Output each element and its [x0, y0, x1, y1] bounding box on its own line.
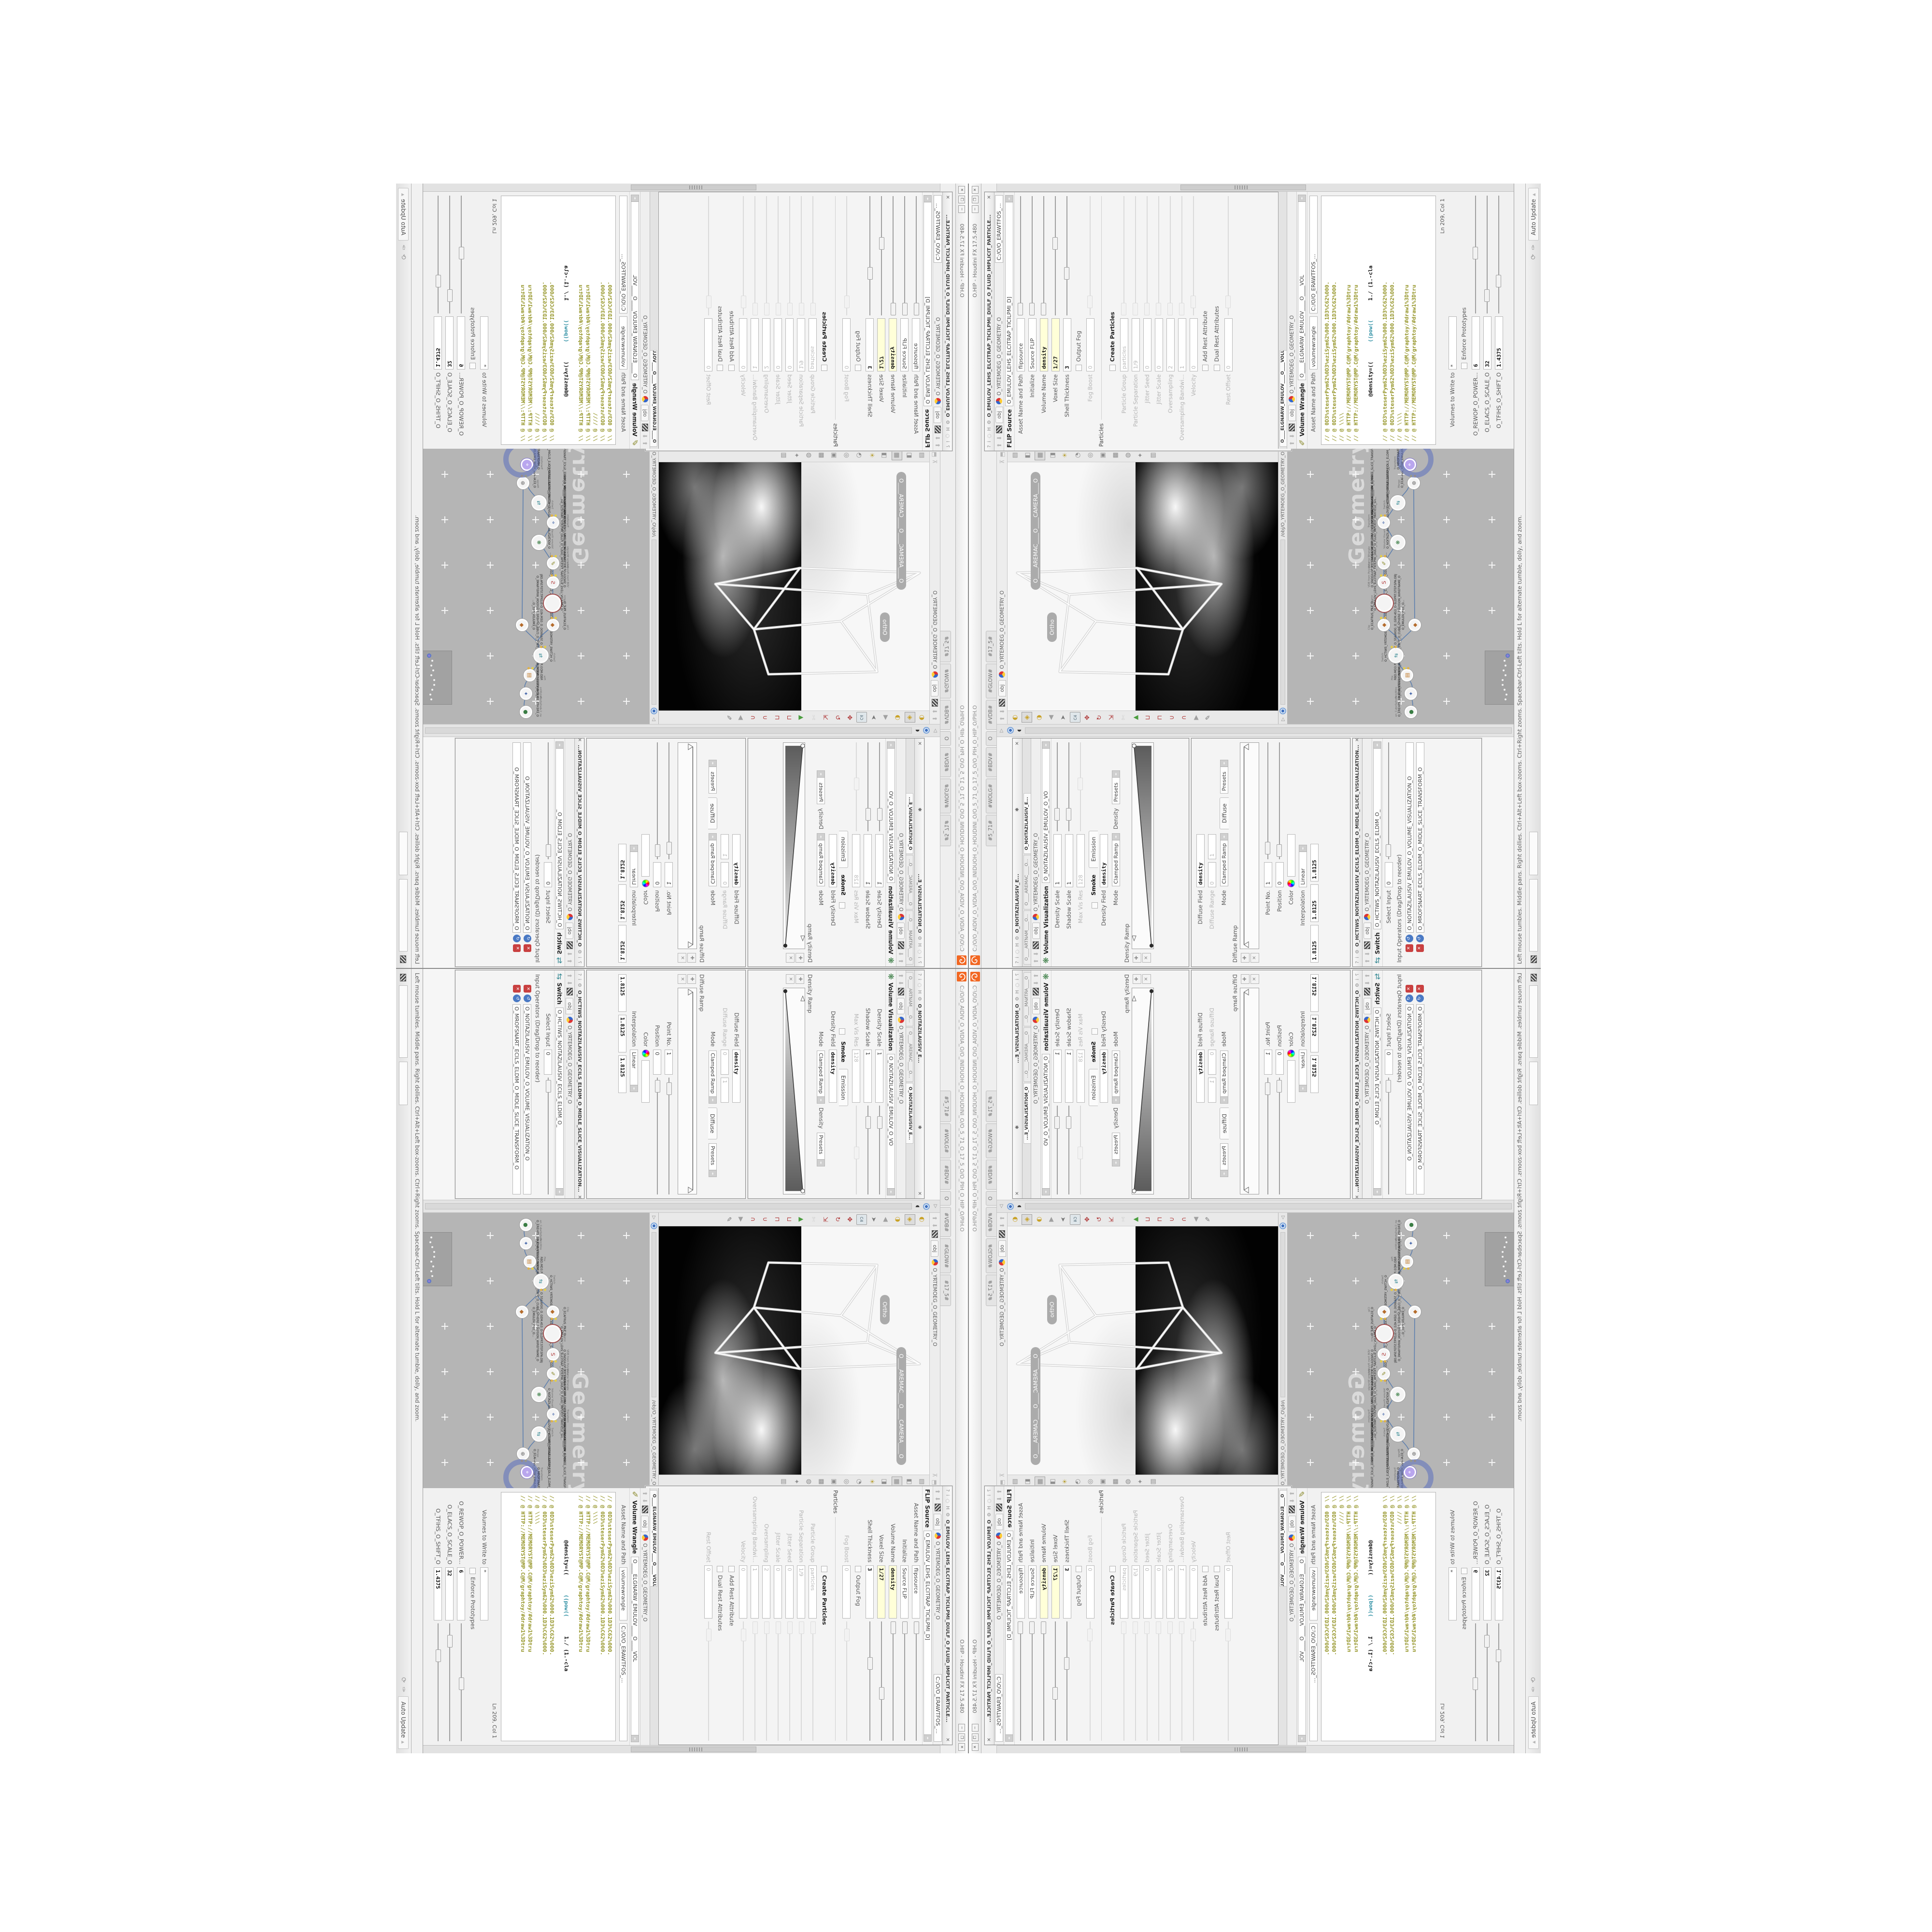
diffuse-range-lo[interactable]: 0	[721, 862, 729, 887]
section-header[interactable]: Particles	[830, 1486, 841, 1745]
shelf-tab[interactable]: #GLOW#	[986, 1238, 996, 1273]
info-icon[interactable]: i	[1015, 957, 1020, 958]
info-icon[interactable]: i	[945, 1494, 950, 1496]
param-slider[interactable]	[1495, 1623, 1502, 1741]
param-slider[interactable]	[1064, 1621, 1070, 1741]
reorder-input-button[interactable]: ↺	[513, 935, 521, 942]
reorder-input-button[interactable]: ↺	[513, 994, 521, 1002]
param-slider[interactable]	[1179, 1621, 1185, 1741]
input-operator-field[interactable]: O_MROFSNART_ECILS_ELDIM_O_MIDLE_SLICE_TR…	[1416, 1004, 1424, 1194]
network-node[interactable]: ❋ Volume VisualizationO_NOITAZILAUSIV_EM…	[1390, 1387, 1406, 1402]
diffuse-ramp-editor[interactable]	[678, 742, 697, 949]
diffuse-range-lo[interactable]: 0	[721, 1050, 729, 1075]
shade-mode-icon[interactable]: ◔	[854, 450, 865, 461]
param-slider[interactable]	[1065, 1106, 1072, 1194]
shelf-tab[interactable]: #17_5#	[940, 1275, 951, 1306]
scale-gadget-icon[interactable]: ⇲	[820, 1214, 831, 1225]
nav-up-icon[interactable]: ⬆	[1033, 973, 1039, 978]
shelf-tab[interactable]: #BDV#	[986, 747, 996, 777]
network-node[interactable]: ⇆ SwitchO_HCTIWS_NOITAZILAUSIV_ECILS_ELD…	[1390, 1426, 1406, 1442]
input-operator-field[interactable]: O_NOITAZILAUSIV_EMULOV_O_VOLUME_VISUALIZ…	[524, 1004, 532, 1194]
shade-diamond-icon[interactable]: ◈	[1022, 1214, 1032, 1225]
nav-up-icon[interactable]: ⬆	[898, 973, 905, 978]
pane-vertical-scrollbar[interactable]	[997, 1745, 1514, 1753]
param-slider[interactable]	[1017, 1621, 1024, 1741]
ramp-add-button[interactable]: ✚	[796, 953, 804, 963]
cut-icon[interactable]: ✄	[808, 712, 819, 723]
param-slider[interactable]	[1077, 1106, 1084, 1194]
close-icon[interactable]: ✕	[1355, 739, 1360, 742]
param-slider[interactable]	[1087, 196, 1094, 315]
nav-up-icon[interactable]: ⬆	[999, 716, 1006, 721]
update-mode-dropdown[interactable]: Auto Update ▴	[398, 1696, 409, 1749]
network-node[interactable]: ⊕ MergeO_ECAFRUS_HTIW_EMULOV_EGREM_O_MER…	[517, 1448, 529, 1460]
param-checkbox[interactable]	[729, 1566, 735, 1572]
network-scrollbar[interactable]	[652, 1232, 656, 1397]
back-icon[interactable]: ◀	[881, 1214, 891, 1225]
color-field[interactable]	[1287, 834, 1295, 877]
breadcrumb-path[interactable]: O_YRTEMOEG_O_GEOMETRY_O	[932, 1268, 938, 1346]
nav-down-icon[interactable]: ⬇	[567, 952, 573, 956]
visible-checkbox[interactable]	[839, 902, 845, 909]
input-operator-field[interactable]: O_NOITAZILAUSIV_EMULOV_O_VOLUME_VISUALIZ…	[524, 742, 532, 933]
shelf-tab[interactable]: #WOLG#	[986, 1123, 996, 1158]
node-name-field[interactable]: O____ELGNARW_EMULOV____O____VOL	[631, 195, 639, 380]
param-slider[interactable]	[853, 1106, 860, 1194]
pin-target-icon[interactable]	[1279, 708, 1286, 714]
node-name-field[interactable]: O_HCTIWS_NOITAZILAUSIV_ECILS_ELDIM_O_	[555, 1008, 564, 1195]
c4-badge-icon[interactable]: C4	[1070, 1214, 1080, 1225]
fwd-icon[interactable]: ▶	[1191, 1214, 1201, 1225]
shelf-tab[interactable]: O	[940, 731, 951, 746]
pane-expand-icon[interactable]: ▷	[1280, 1216, 1286, 1220]
param-slider[interactable]	[786, 1621, 793, 1741]
network-node[interactable]: ⊕ MergeO_ECAFRUS_HTIW_EMULOV_EGREM_O_MER…	[517, 477, 529, 489]
nav-up-icon[interactable]: ⬆	[996, 1489, 1003, 1494]
ortho-pill[interactable]: Ortho	[1047, 1295, 1057, 1324]
param-checkbox[interactable]	[1214, 365, 1220, 371]
breadcrumb-path[interactable]: O_YRTEMOEG_O_GEOMETRY_O	[932, 591, 938, 669]
breadcrumb-path[interactable]: O_YRTEMOEG_O_GEOMETRY_O	[1033, 1025, 1039, 1104]
info-icon[interactable]: i	[1015, 979, 1020, 980]
vex-code-editor[interactable]: // @ 0D3%steserPym62%0D3%eziSym62%000.1D…	[1321, 1492, 1436, 1741]
asset-name-field[interactable]: volumewrangle	[1309, 316, 1318, 369]
nav-down-icon[interactable]: ⬇	[1364, 980, 1371, 985]
shade-diamond-icon[interactable]: ◈	[905, 712, 915, 723]
param-slider[interactable]	[775, 1621, 781, 1741]
presets-dropdown[interactable]: Presets	[1112, 770, 1120, 804]
help-icon[interactable]: ?	[917, 961, 922, 964]
breadcrumb-tab[interactable]: obj	[995, 407, 1003, 423]
minimize-button[interactable]: ─	[959, 1724, 966, 1732]
viewport-render-area[interactable]: O____AREMAC____O____CAMERA____O Ortho	[1008, 1226, 1278, 1475]
network-node[interactable]: ✐ Volume WrangleO___ELGNARW_EMULOV___O__…	[547, 557, 559, 569]
param-slider[interactable]	[1167, 196, 1174, 315]
ramp-delete-button[interactable]: ✕	[678, 953, 686, 963]
shade-flat-icon[interactable]: ◑	[1034, 712, 1044, 723]
back-icon[interactable]: ◀	[1046, 712, 1056, 723]
pane-vertical-scrollbar[interactable]	[423, 1745, 940, 1753]
nav-up-icon[interactable]: ⬆	[567, 959, 573, 964]
network-address[interactable]: /obj/O_YRTEMOEG_O_GEOMETRY_O	[1280, 1400, 1286, 1485]
info-icon[interactable]: i	[987, 441, 992, 442]
param-slider[interactable]	[853, 742, 860, 831]
update-mode-dropdown[interactable]: Auto Update ▴	[1528, 188, 1539, 241]
shelf-tab[interactable]: #5_71#	[940, 815, 951, 846]
close-button[interactable]: ✕	[959, 1743, 966, 1751]
diffuse-presets-dropdown[interactable]: Presets	[709, 1143, 717, 1177]
interpolation-dropdown[interactable]: Linear	[1299, 845, 1307, 887]
light-icon[interactable]: ☀	[867, 450, 877, 461]
color-swatch[interactable]	[1287, 880, 1295, 887]
shelf-tab[interactable]: #17_5#	[986, 1275, 996, 1306]
nav-up-icon[interactable]: ⬆	[999, 1216, 1006, 1221]
snap-magnet-icon[interactable]: ∩	[748, 712, 758, 723]
minimize-button[interactable]: ─	[972, 205, 979, 213]
shelf-tab[interactable]: #VDB#	[986, 700, 996, 730]
pane-vertical-scrollbar[interactable]	[423, 184, 940, 192]
breadcrumb-path[interactable]: O_YRTEMOEG_O_GEOMETRY_O	[642, 1543, 648, 1621]
help-icon[interactable]: ?	[1015, 961, 1020, 964]
value-field[interactable]: 1.8125	[619, 1015, 627, 1052]
param-slider[interactable]	[1132, 196, 1139, 315]
breadcrumb-tab[interactable]: obj	[931, 1240, 939, 1257]
point-slider[interactable]	[666, 742, 672, 859]
node-name-field[interactable]: O____ELGNARW_EMULOV____O____VOL	[1298, 195, 1306, 380]
point-no-field[interactable]: 1	[665, 1050, 673, 1075]
input-operator-field[interactable]: O_MROFSNART_ECILS_ELDIM_O_MIDLE_SLICE_TR…	[513, 1004, 521, 1194]
position-field[interactable]: 0	[1276, 862, 1284, 887]
delete-input-button[interactable]: ✕	[524, 985, 531, 993]
flip-source-titlebar[interactable]: ? i ◌ H ⚙ O_EMULOV_LEHS_ELCITRAP_TICILPM…	[985, 192, 994, 451]
presets-dropdown[interactable]: Presets	[817, 1133, 825, 1166]
param-checkbox[interactable]	[1202, 1566, 1208, 1572]
select-input-slider[interactable]	[545, 742, 552, 859]
close-icon[interactable]: ✕	[577, 1195, 582, 1198]
layout-quad-icon[interactable]: ▦	[892, 450, 902, 461]
select-input-field[interactable]: 0	[1385, 862, 1393, 887]
volumes-field[interactable]: *	[481, 316, 489, 369]
param-slider[interactable]	[843, 1621, 850, 1741]
network-node[interactable]: ⇆ SwitchO_HCTIWS_NOITAZILAUSIV_ECILS_ELD…	[531, 495, 547, 511]
ramp-delete-button[interactable]: ✕	[678, 974, 686, 984]
param-slider[interactable]	[1144, 196, 1151, 315]
tab-smoke[interactable]: Smoke	[1089, 1036, 1098, 1068]
select-arrow-icon[interactable]: ➤	[868, 712, 879, 723]
param-checkbox[interactable]	[1109, 1566, 1116, 1572]
switch-titlebar[interactable]: ? i ⚙ O_HCTIWS_NOITAZILAUSIV_ECILS_ELDIM…	[1353, 970, 1363, 1198]
ramp-delete-button[interactable]: ✕	[1142, 974, 1151, 984]
help-icon[interactable]: ?	[577, 973, 582, 976]
breadcrumb-tab[interactable]: obj	[1032, 998, 1040, 1014]
param-slider[interactable]	[1225, 1621, 1232, 1741]
network-node[interactable]: ⌖ TransformO_MROFSNART_ECILS_ELDIM_O_MID…	[547, 1408, 559, 1421]
shelf-tab[interactable]: #VDB#	[940, 700, 951, 730]
ramp-add-button[interactable]: ✚	[1241, 953, 1250, 963]
snap-point-magnet-icon[interactable]: ∪	[760, 712, 770, 723]
pane-tab-mantra[interactable]: O____ARTNAM____O...	[1023, 910, 1031, 965]
pane-scrollbar[interactable]	[425, 1203, 912, 1209]
asset-name-field[interactable]: volumewrangle	[620, 1567, 628, 1620]
shade-flat-icon[interactable]: ◑	[1034, 1214, 1044, 1225]
position-slider[interactable]	[654, 742, 661, 859]
value-field[interactable]: 1.8125	[1310, 974, 1319, 1012]
pin-target-icon[interactable]	[1007, 727, 1014, 734]
network-node[interactable]: ⌖ TransformO_MROFSNART_TLUSER_O_RESULT_T…	[1404, 458, 1416, 471]
info-icon[interactable]: i	[577, 957, 582, 958]
ramp-add-button[interactable]: ✚	[1133, 953, 1141, 963]
param-slider[interactable]	[1144, 1621, 1151, 1741]
point-no-field[interactable]: 1	[665, 862, 673, 887]
tab-emission[interactable]: Emission	[839, 1069, 848, 1106]
camera-pill[interactable]: O____AREMAC____O____CAMERA____O	[896, 1347, 906, 1465]
breadcrumb-tab[interactable]: obj	[566, 923, 574, 939]
help-icon[interactable]: ?	[945, 1489, 950, 1492]
spare-icon[interactable]: ✦	[1135, 450, 1146, 461]
select-input-field[interactable]: 0	[544, 1050, 553, 1075]
shelf-tab[interactable]: #GLOW#	[986, 664, 996, 698]
nav-down-icon[interactable]: ⬇	[932, 709, 938, 714]
input-operator-field[interactable]: O_MROFSNART_ECILS_ELDIM_O_MIDLE_SLICE_TR…	[1416, 742, 1424, 933]
shelf-tab[interactable]: #5_71#	[940, 1091, 951, 1122]
network-editor[interactable]: Geometry ● an_CubeSphereO_EREHPS_EBUC_O_…	[396, 449, 649, 724]
network-node[interactable]: S VDB from PolygonsO_SNOGILOP_YRTEMOEG_M…	[1378, 576, 1390, 589]
visible-checkbox[interactable]	[839, 1028, 845, 1035]
param-slider[interactable]	[740, 1621, 747, 1741]
param-slider[interactable]	[435, 1623, 441, 1741]
color-swatch[interactable]	[642, 880, 650, 887]
fwd-icon[interactable]: ▶	[1191, 712, 1201, 723]
tab-smoke[interactable]: Smoke	[839, 1036, 848, 1068]
param-slider[interactable]	[1155, 1621, 1162, 1741]
hand-icon[interactable]: ✑	[1530, 1687, 1537, 1692]
diffuse-range-hi[interactable]: 1	[1208, 834, 1216, 859]
switch-titlebar[interactable]: ? i ⚙ O_HCTIWS_NOITAZILAUSIV_ECILS_ELDIM…	[1353, 739, 1363, 966]
flip-source-titlebar[interactable]: ? i ◌ H ⚙ O_EMULOV_LEHS_ELCITRAP_TICILPM…	[942, 192, 952, 451]
snap-magnet-icon[interactable]: ∩	[1179, 1214, 1189, 1225]
help-icon[interactable]: ?	[945, 445, 950, 448]
select-input-field[interactable]: 0	[1385, 1050, 1393, 1075]
visible-checkbox[interactable]	[1092, 902, 1098, 909]
param-slider[interactable]	[865, 742, 871, 831]
network-node[interactable]: ⇆ SwitchO_HCTIWS_NOITAZILAUSIV_ECILS_ELD…	[1390, 495, 1406, 511]
param-slider[interactable]	[1040, 1621, 1047, 1741]
tab-diffuse[interactable]: Diffuse	[1220, 797, 1229, 829]
pane-expand-icon[interactable]: ▷	[999, 1205, 1004, 1208]
pin-target-icon[interactable]	[923, 1203, 930, 1210]
pane-tab-camera[interactable]: O____AREMAC____O...	[1023, 855, 1031, 909]
param-slider[interactable]	[1052, 1621, 1059, 1741]
nav-down-icon[interactable]: ⬇	[935, 436, 941, 440]
pane-expand-icon[interactable]: ▷	[1280, 717, 1286, 721]
fwd-icon[interactable]: ▶	[736, 712, 746, 723]
diffuse-field-value[interactable]: density	[1196, 834, 1205, 887]
info-icon[interactable]: i	[917, 979, 922, 980]
nav-down-icon[interactable]: ⬇	[898, 980, 905, 985]
diffuse-field-value[interactable]: density	[1196, 1050, 1205, 1103]
ramp-add-button[interactable]: ✚	[1241, 974, 1250, 984]
snap-curve-magnet-icon[interactable]: ⊓	[1154, 1214, 1165, 1225]
param-slider[interactable]	[913, 196, 920, 315]
param-slider[interactable]	[810, 1621, 816, 1741]
diffuse-ramp-editor[interactable]	[1240, 988, 1259, 1194]
pane-menu-icon[interactable]: ◖	[1017, 729, 1022, 732]
diffuse-range-hi[interactable]: 1	[721, 834, 729, 859]
pane-tab-volume-wrangle[interactable]: O____ELGNARW_EMULOV____O____VOLUME_WRANG…	[650, 1490, 657, 1587]
ramp-delete-button[interactable]: ✕	[1250, 953, 1259, 963]
tab-smoke[interactable]: Smoke	[839, 869, 848, 901]
pane-expand-icon[interactable]: ▷	[652, 1216, 657, 1220]
spare-icon[interactable]: ✦	[791, 450, 802, 461]
ramp-delete-button[interactable]: ✕	[786, 953, 795, 963]
c4-badge-icon[interactable]: C4	[856, 1214, 867, 1225]
network-node[interactable]: ◆ ClipO_ECAFRUS_PILC_O...	[1378, 1306, 1390, 1318]
select-arrow-icon[interactable]: ➤	[1058, 712, 1068, 723]
sketch-icon[interactable]: ✎	[1203, 1214, 1213, 1225]
recook-icon[interactable]: ⟳	[399, 1677, 407, 1683]
param-slider[interactable]	[1087, 1621, 1094, 1741]
shelf-tab[interactable]: #WOLG#	[940, 779, 951, 813]
breadcrumb-path[interactable]: O_YRTEMOEG_O_GEOMETRY_O	[1364, 833, 1370, 911]
pane-expand-icon[interactable]: ▷	[652, 717, 657, 721]
software-path-field[interactable]: C:/O/O_ERAWTFOS_...	[934, 1674, 942, 1742]
breadcrumb-tab[interactable]: obj	[998, 680, 1006, 696]
breadcrumb-path[interactable]: O_YRTEMOEG_O_GEOMETRY_O	[1289, 1543, 1295, 1621]
param-slider[interactable]	[867, 196, 873, 315]
scale-gadget-icon[interactable]: ⇲	[1106, 712, 1117, 723]
ramp-add-button[interactable]: ✚	[1133, 974, 1141, 984]
network-node[interactable]: ▤ FileRBD.MD3.PETS.TBPOLS_O_5S&WOG_O_GEM…	[524, 669, 536, 682]
breadcrumb-tab[interactable]: obj	[1288, 1516, 1296, 1532]
param-checkbox[interactable]	[1076, 365, 1082, 371]
network-scrollbar[interactable]	[652, 540, 656, 705]
pin-target-icon[interactable]	[651, 708, 657, 714]
update-mode-dropdown[interactable]: Auto Update ▴	[1528, 1696, 1539, 1749]
rotate-gadget-icon[interactable]: ↻	[832, 1214, 843, 1225]
param-slider[interactable]	[1190, 1621, 1197, 1741]
position-field[interactable]: 0	[653, 1050, 662, 1075]
cut-icon[interactable]: ✄	[1118, 712, 1129, 723]
network-node[interactable]: FLIP SourceO_EMULOV_LEHS_ELCITRAP_TICILP…	[544, 1325, 561, 1342]
breadcrumb-path[interactable]: O_YRTEMOEG_O_GEOMETRY_O	[642, 315, 648, 394]
breadcrumb-tab[interactable]: obj	[1288, 405, 1296, 421]
param-slider[interactable]	[1029, 196, 1036, 315]
param-slider[interactable]	[752, 1621, 758, 1741]
param-checkbox[interactable]	[1076, 1566, 1082, 1572]
close-button[interactable]: ✕	[972, 1743, 979, 1751]
breadcrumb-tab[interactable]: obj	[995, 1514, 1003, 1530]
recook-icon[interactable]: ⟳	[1530, 1677, 1537, 1683]
network-node[interactable]: FLIP SourceO_EMULOV_LEHS_ELCITRAP_TICILP…	[1376, 1325, 1393, 1342]
param-slider[interactable]	[1017, 196, 1024, 315]
shelf-tab[interactable]: #WOLG#	[940, 1123, 951, 1158]
help-icon[interactable]: ?	[577, 961, 582, 964]
value-field[interactable]: 1.8125	[1310, 884, 1319, 922]
point-no-field[interactable]: 1	[1264, 1050, 1272, 1075]
enforce-checkbox[interactable]	[470, 1568, 476, 1574]
breadcrumb-path[interactable]: O_YRTEMOEG_O_GEOMETRY_O	[996, 317, 1002, 396]
breadcrumb-tab[interactable]: obj	[641, 1516, 649, 1532]
param-slider[interactable]	[458, 1623, 465, 1741]
close-icon[interactable]: ✕	[945, 195, 950, 199]
param-slider[interactable]	[1155, 196, 1162, 315]
pane-scrollbar[interactable]	[425, 727, 912, 734]
nav-down-icon[interactable]: ⬇	[642, 1498, 649, 1503]
shelf-tab[interactable]: #17_5#	[940, 631, 951, 662]
grid-icon[interactable]: ▩	[1110, 450, 1121, 461]
pane-vertical-scrollbar[interactable]	[997, 184, 1514, 192]
input-operator-field[interactable]: O_NOITAZILAUSIV_EMULOV_O_VOLUME_VISUALIZ…	[1406, 1004, 1414, 1194]
snap-magnet-icon[interactable]: ∩	[748, 1214, 758, 1225]
select-arrow-icon[interactable]: ➤	[868, 1214, 879, 1225]
node-name-field[interactable]: O_EMULOV_LEHS_ELCITRAP_TICILPMI_D]	[923, 195, 932, 406]
pane-tab-volume-visualization[interactable]: O_NOITAZILAUSIV_E...	[1023, 793, 1031, 854]
nav-up-icon[interactable]: ⬆	[1033, 959, 1039, 964]
value-field[interactable]: 1.8125	[619, 925, 627, 963]
param-slider[interactable]	[740, 196, 747, 315]
hand-icon[interactable]: ✑	[399, 1687, 407, 1692]
density-ramp-editor[interactable]	[783, 988, 805, 1194]
pane-tab-volume-visualization[interactable]: O_NOITAZILAUSIV_E...	[1023, 1083, 1031, 1144]
node-name-field[interactable]: O_EMULOV_LEHS_ELCITRAP_TICILPMI_D]	[1005, 195, 1013, 406]
network-node[interactable]: ● an_CubeSphereO_EREHPS_EBUC_O_CUBE_SPHE…	[520, 706, 532, 718]
param-checkbox[interactable]	[717, 365, 724, 371]
param-slider[interactable]	[1121, 1621, 1127, 1741]
ramp-delete-button[interactable]: ✕	[1142, 953, 1151, 963]
param-slider[interactable]	[1132, 1621, 1139, 1741]
minimize-button[interactable]: ─	[959, 205, 966, 213]
param-slider[interactable]	[763, 196, 770, 315]
network-node[interactable]: ◆ ClipO_ECAFRUS_PILC_O...	[1378, 619, 1390, 631]
nav-down-icon[interactable]: ⬇	[898, 952, 905, 956]
shelf-tab[interactable]: #17_5#	[986, 631, 996, 662]
wire-mode-icon[interactable]: ◎	[841, 450, 852, 461]
axis-pyramid-icon[interactable]: ▲	[1130, 1214, 1141, 1225]
nav-up-icon[interactable]: ⬆	[567, 973, 573, 978]
volume-visualization-titlebar[interactable]: ? i ◌ H ⚙ O_NOITAZILAUSIV_E... ✱ ✕	[1013, 739, 1023, 966]
gamma-icon[interactable]: ◍	[1122, 450, 1133, 461]
param-slider[interactable]	[1484, 196, 1491, 313]
network-node[interactable]: ✐ Volume WrangleO___ELGNARW_EMULOV___O__…	[1378, 1367, 1390, 1380]
hand-icon[interactable]: ✑	[1530, 244, 1537, 250]
nav-up-icon[interactable]: ⬆	[642, 441, 649, 446]
vex-code-editor[interactable]: // @ 0D3%steserPym62%0D3%eziSym62%000.1D…	[1321, 196, 1436, 445]
param-slider[interactable]	[435, 196, 441, 313]
delete-input-button[interactable]: ✕	[1406, 944, 1413, 952]
pane-tab-volume-visualization[interactable]: O_NOITAZILAUSIV_E...	[906, 793, 913, 854]
shade-diamond-icon[interactable]: ◈	[905, 1214, 915, 1225]
node-name-field[interactable]: O_NOITAZILAUSIV_EMULOV_O_VO	[1042, 741, 1050, 883]
shelf-tab[interactable]: #5_71#	[986, 815, 996, 846]
param-slider[interactable]	[890, 196, 896, 315]
display-flag-icon[interactable]: ▣	[1097, 450, 1108, 461]
switch-titlebar[interactable]: ? i ⚙ O_HCTIWS_NOITAZILAUSIV_ECILS_ELDIM…	[574, 739, 584, 966]
param-checkbox[interactable]	[717, 1566, 724, 1572]
update-mode-dropdown[interactable]: Auto Update ▴	[398, 188, 409, 241]
snap-magnet-icon[interactable]: ∩	[1179, 712, 1189, 723]
nav-down-icon[interactable]: ⬇	[999, 709, 1006, 714]
shelf-tab[interactable]: #VDB#	[940, 1207, 951, 1237]
ramp-add-button[interactable]: ✚	[687, 953, 696, 963]
param-slider[interactable]	[1225, 196, 1232, 315]
param-slider[interactable]	[865, 1106, 871, 1194]
sketch-icon[interactable]: ✎	[1203, 712, 1213, 723]
param-slider[interactable]	[1040, 196, 1047, 315]
nav-down-icon[interactable]: ⬇	[932, 1223, 938, 1228]
breadcrumb-path[interactable]: O_YRTEMOEG_O_GEOMETRY_O	[935, 317, 941, 396]
enforce-checkbox[interactable]	[1461, 1568, 1467, 1574]
network-editor[interactable]: Geometry ● an_CubeSphereO_EREHPS_EBUC_O_…	[1288, 449, 1541, 724]
